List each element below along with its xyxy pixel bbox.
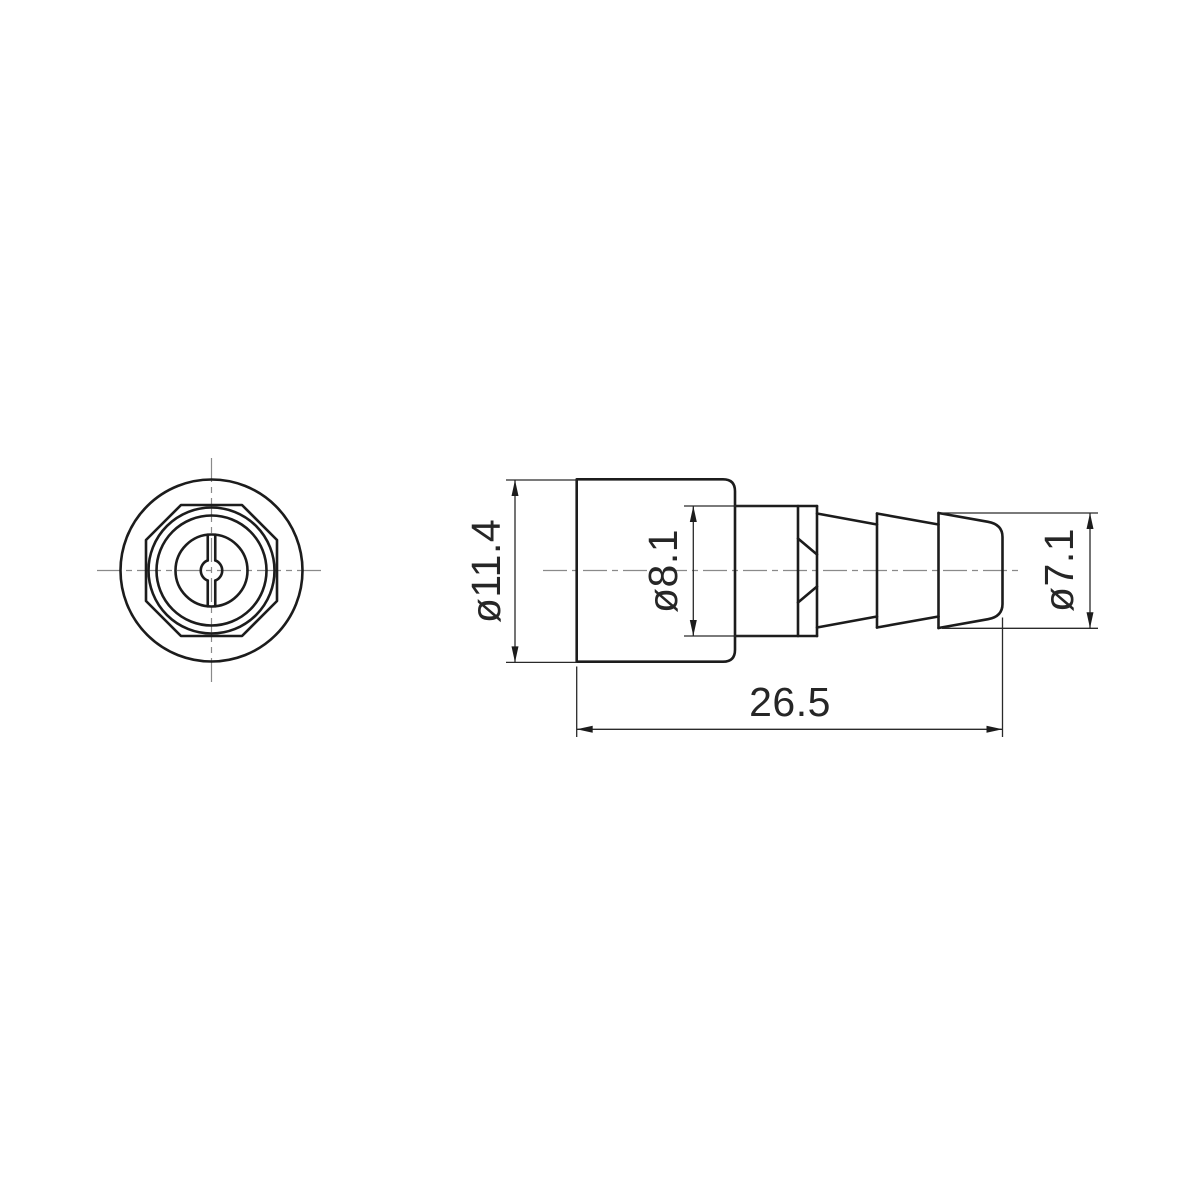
dimension-shaft-diameter: ø8.1 [640,506,760,636]
dimension-body-diameter: ø11.4 [463,480,577,662]
barb2-taper-top [877,514,939,525]
arrowhead [987,726,1003,733]
dimension-text: ø11.4 [463,519,509,623]
arrowhead [512,646,519,662]
arrowhead [577,726,593,733]
arrowhead [1087,513,1094,529]
arrowhead [690,620,697,636]
arrowhead [512,480,519,496]
barb1-taper-top [817,514,877,525]
dimension-text: ø8.1 [640,529,686,613]
drawing-sheet: ø11.4 ø8.1 ø7.1 26.5 [0,0,1200,1200]
barb2-taper-bottom [877,617,939,628]
dimension-text: ø7.1 [1036,528,1082,612]
dimension-text: 26.5 [749,679,831,725]
front-view [97,458,323,682]
arrowhead [690,506,697,522]
technical-drawing: ø11.4 ø8.1 ø7.1 26.5 [0,0,1200,1200]
side-view [543,479,1022,661]
transition-cone-lower [798,587,817,603]
barb1-taper-bottom [817,617,877,628]
arrowhead [1087,612,1094,628]
transition-cone-upper [798,539,817,555]
